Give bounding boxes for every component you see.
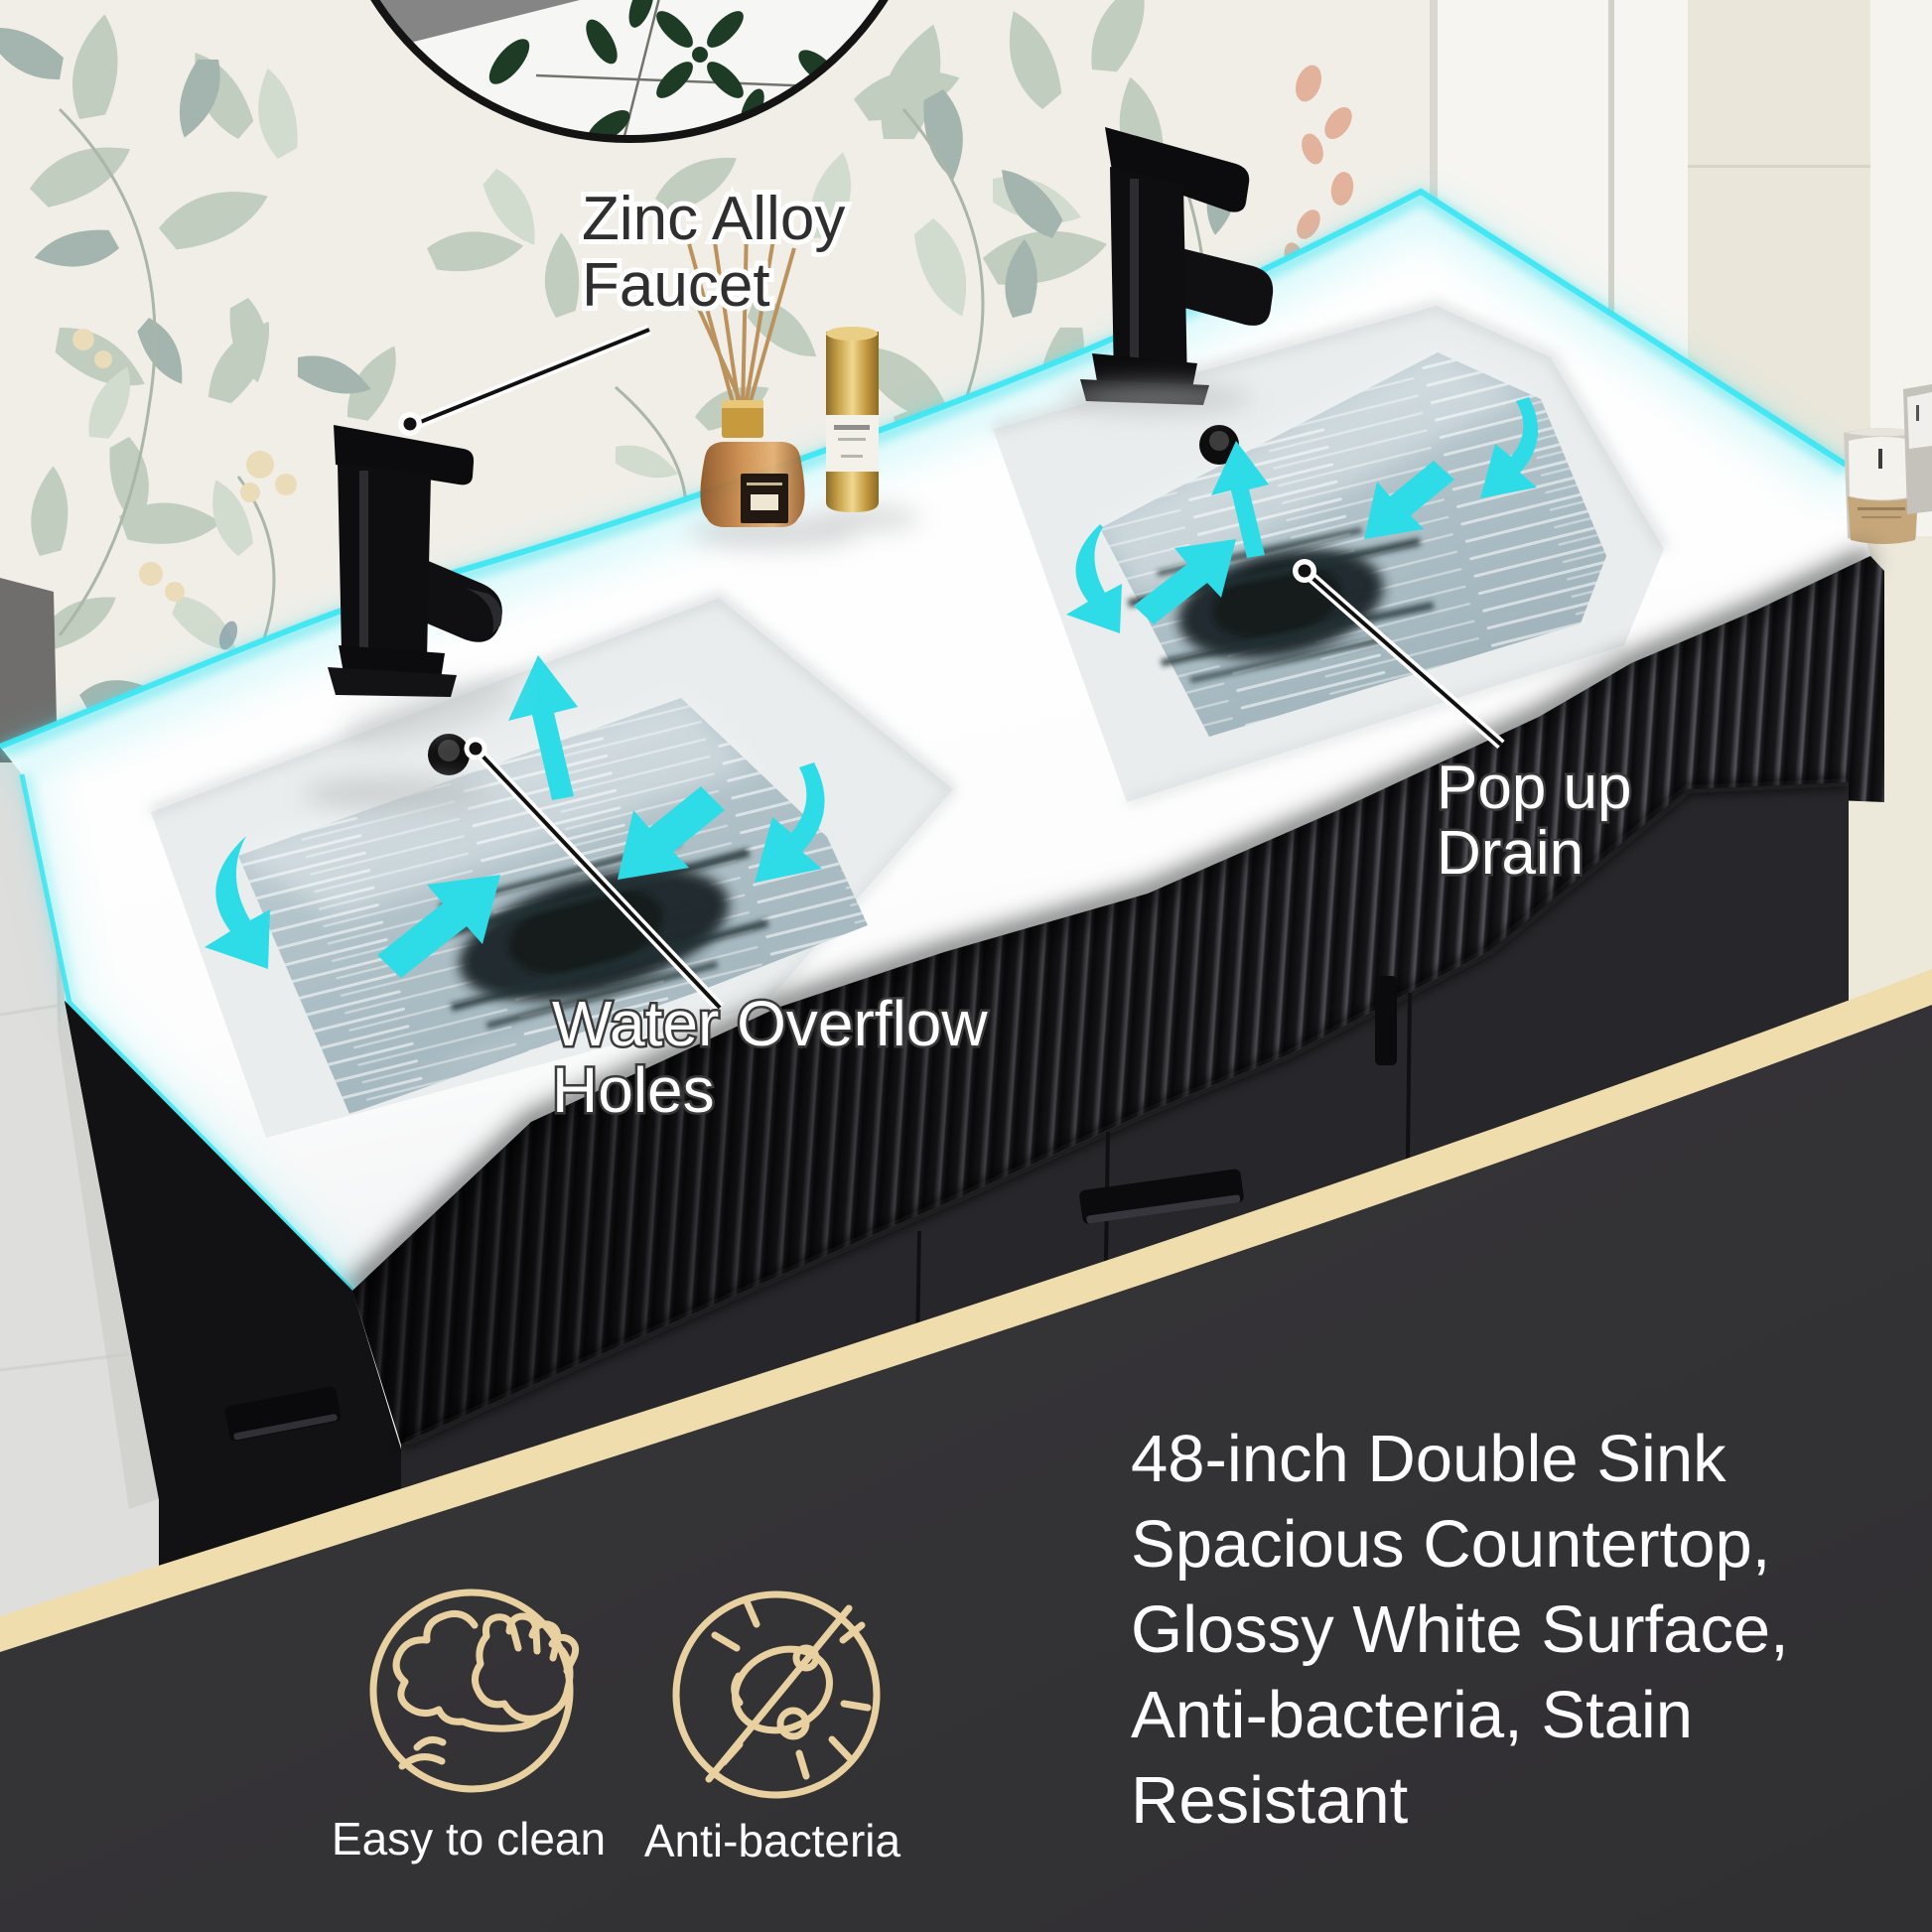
svg-text:Anti-bacteria: Anti-bacteria — [644, 1815, 901, 1866]
svg-text:Anti-bacteria, Stain: Anti-bacteria, Stain — [1131, 1678, 1693, 1752]
svg-text:Easy to clean: Easy to clean — [332, 1813, 606, 1864]
svg-text:Zinc Alloy: Zinc Alloy — [582, 185, 845, 253]
svg-text:Resistant: Resistant — [1131, 1763, 1409, 1838]
svg-text:48-inch Double Sink: 48-inch Double Sink — [1131, 1422, 1726, 1496]
svg-text:Water Overflow: Water Overflow — [552, 988, 988, 1059]
svg-text:Holes: Holes — [552, 1054, 715, 1126]
svg-text:Glossy White Surface,: Glossy White Surface, — [1131, 1592, 1789, 1667]
svg-text:Faucet: Faucet — [582, 251, 770, 320]
svg-text:Drain: Drain — [1437, 819, 1584, 888]
svg-text:Spacious Countertop,: Spacious Countertop, — [1131, 1507, 1770, 1582]
svg-text:Pop up: Pop up — [1437, 754, 1632, 822]
